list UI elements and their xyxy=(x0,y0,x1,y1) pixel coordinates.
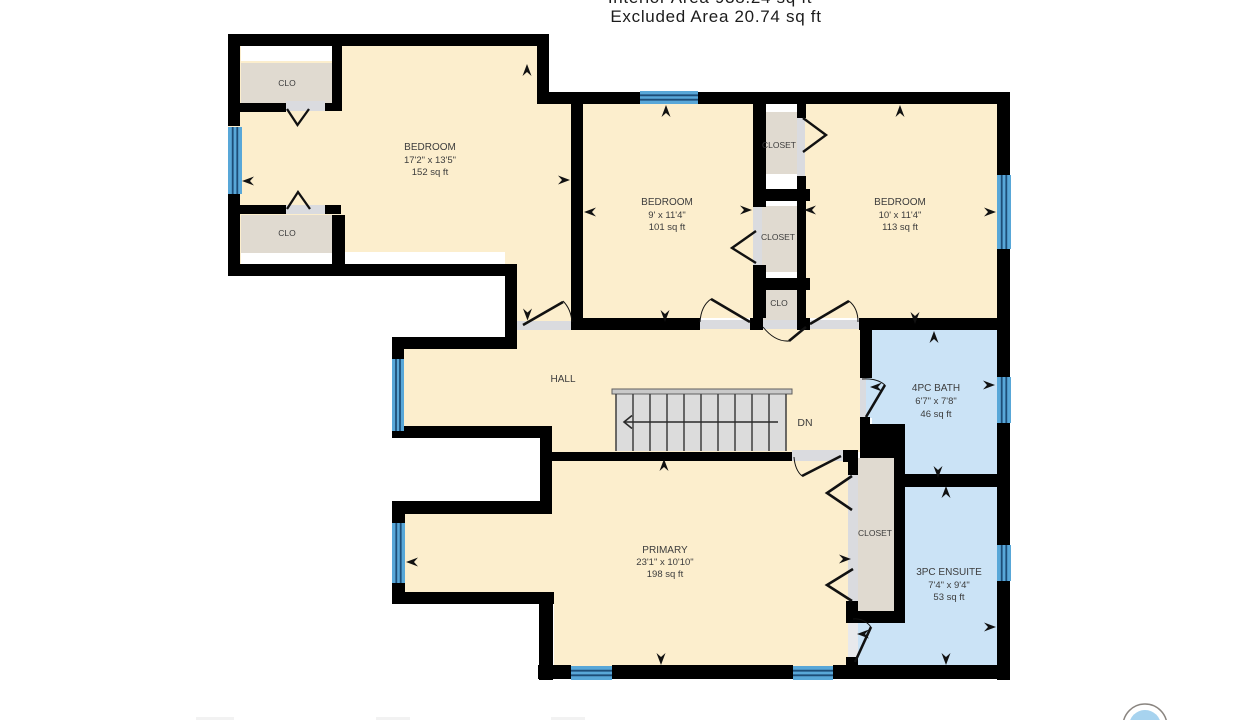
svg-text:198 sq ft: 198 sq ft xyxy=(647,569,684,580)
svg-text:7'4" x 9'4": 7'4" x 9'4" xyxy=(928,580,970,591)
svg-text:10' x 11'4": 10' x 11'4" xyxy=(879,210,922,221)
svg-text:CLO: CLO xyxy=(278,228,296,238)
svg-text:BEDROOM: BEDROOM xyxy=(874,197,926,208)
svg-text:HALL: HALL xyxy=(550,374,575,385)
svg-text:6'7" x 7'8": 6'7" x 7'8" xyxy=(915,396,957,407)
svg-text:3PC ENSUITE: 3PC ENSUITE xyxy=(916,567,982,578)
svg-text:PRIMARY: PRIMARY xyxy=(642,545,688,556)
svg-text:53 sq ft: 53 sq ft xyxy=(933,592,965,603)
svg-text:DN: DN xyxy=(797,417,812,429)
svg-text:CLO: CLO xyxy=(278,78,296,88)
svg-text:23'1" x 10'10": 23'1" x 10'10" xyxy=(636,557,693,568)
svg-text:46 sq ft: 46 sq ft xyxy=(920,409,952,420)
svg-text:17'2" x 13'5": 17'2" x 13'5" xyxy=(404,155,456,166)
svg-text:101 sq ft: 101 sq ft xyxy=(649,222,686,233)
svg-text:BEDROOM: BEDROOM xyxy=(404,142,456,153)
svg-text:152 sq ft: 152 sq ft xyxy=(412,167,449,178)
svg-text:4PC BATH: 4PC BATH xyxy=(912,383,960,394)
svg-text:Excluded Area 20.74 sq ft: Excluded Area 20.74 sq ft xyxy=(610,7,821,26)
svg-text:Interior Area 938.24 sq ft: Interior Area 938.24 sq ft xyxy=(608,0,812,7)
svg-text:CLOSET: CLOSET xyxy=(762,140,796,150)
svg-text:113 sq ft: 113 sq ft xyxy=(882,222,918,233)
svg-text:BEDROOM: BEDROOM xyxy=(641,197,693,208)
svg-text:CLOSET: CLOSET xyxy=(858,528,892,538)
svg-text:CLO: CLO xyxy=(770,298,788,308)
svg-text:9' x 11'4": 9' x 11'4" xyxy=(648,210,685,221)
svg-text:CLOSET: CLOSET xyxy=(761,232,795,242)
